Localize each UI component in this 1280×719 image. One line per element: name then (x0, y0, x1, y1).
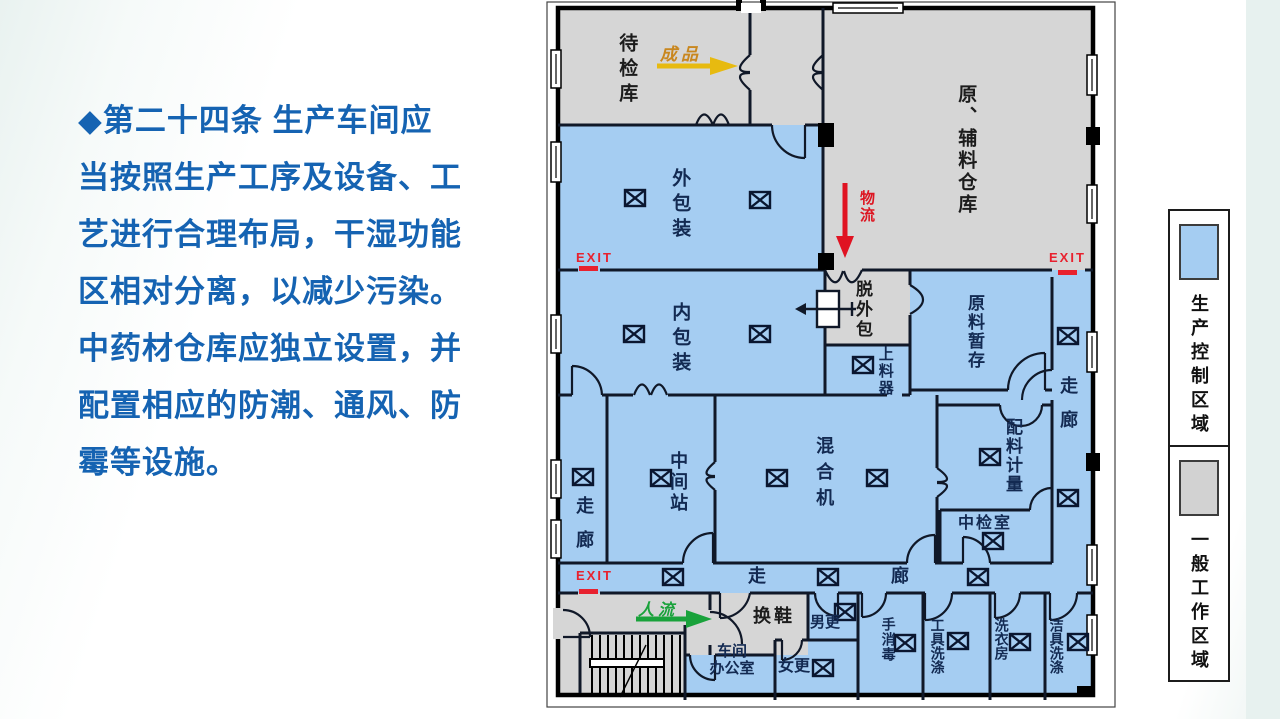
flow-label-finished-goods: 成品 (660, 40, 702, 65)
room-label-mid-inspection: 中检室 (958, 515, 1012, 533)
corridor-label-bottom-b: 廊 (891, 566, 909, 586)
corridor-label-left: 走廊 (574, 496, 594, 564)
paragraph-line: 区相对分离，以减少污染。 (78, 263, 558, 320)
room-label-feeder: 上料器 (876, 346, 893, 397)
room-label-waiting-store: 待检库 (616, 33, 637, 108)
legend-production-cell: 生产控制区域 (1170, 211, 1228, 447)
exit-label-right: EXIT (1049, 250, 1086, 265)
paragraph-line: 艺进行合理布局，干湿功能 (78, 206, 558, 263)
room-label-outer-packing: 外包装 (669, 168, 690, 243)
exit-label-left: EXIT (576, 250, 613, 265)
paragraph-line: 配置相应的防潮、通风、防 (78, 377, 558, 434)
legend-general-label: 一般工作区域 (1186, 530, 1212, 674)
room-label-hand-disinfect: 手消毒 (880, 617, 896, 662)
dock-opening (741, 3, 761, 13)
room-label-cleaning-tool-wash: 洁具洗涤 (1048, 618, 1064, 674)
stair-door-gap (553, 608, 563, 639)
room-label-raw-temp-storage: 原料暂存 (965, 294, 984, 370)
room-label-men-change: 男更 (810, 615, 840, 632)
room-label-mixer: 混合机 (814, 436, 834, 514)
exit-label-bottom: EXIT (576, 568, 613, 583)
room-label-inner-packing: 内包装 (669, 302, 690, 377)
paragraph-line: ◆第二十四条 生产车间应 (78, 92, 558, 149)
room-label-strip-outer-pack: 脱外包 (853, 280, 872, 340)
paragraph-line: 中药材仓库应独立设置，并 (78, 320, 558, 377)
regulation-paragraph: ◆第二十四条 生产车间应 当按照生产工序及设备、工 艺进行合理布局，干湿功能 区… (78, 92, 558, 491)
room-label-office-line2: 办公室 (692, 661, 772, 678)
slide: ◆第二十四条 生产车间应 当按照生产工序及设备、工 艺进行合理布局，干湿功能 区… (0, 0, 1280, 719)
flow-label-logistics: 物流 (856, 190, 877, 224)
room-label-raw-aux-warehouse: 原、辅料仓库 (955, 84, 976, 216)
room-label-batching-metering: 配料计量 (1003, 418, 1022, 494)
corridor-label-bottom-a: 走 (748, 566, 766, 586)
legend-general-cell: 一般工作区域 (1170, 447, 1228, 681)
room-label-shoe-change: 换鞋 (753, 606, 795, 626)
legend-general-swatch (1179, 460, 1219, 516)
room-label-office-line1: 车间 (692, 644, 772, 661)
room-label-office: 车间 办公室 (692, 644, 772, 678)
legend-production-label: 生产控制区域 (1186, 294, 1212, 438)
background-right-band (1246, 0, 1280, 719)
legend: 生产控制区域 一般工作区域 (1168, 209, 1230, 682)
room-label-mid-station: 中间站 (668, 451, 688, 514)
room-label-women-change: 女更 (778, 658, 810, 676)
room-label-tool-washing: 工具洗涤 (929, 618, 945, 674)
corridor-label-right: 走廊 (1058, 376, 1078, 444)
room-label-laundry: 洗衣房 (993, 618, 1009, 660)
flow-label-people: 人流 (638, 596, 678, 620)
floor-plan: 待检库 原、辅料仓库 外包装 内包装 脱外包 上料器 原料暂存 配料计量 走廊 … (540, 0, 1140, 719)
legend-production-swatch (1179, 224, 1219, 280)
paragraph-line: 霉等设施。 (78, 434, 558, 491)
paragraph-line: 当按照生产工序及设备、工 (78, 149, 558, 206)
